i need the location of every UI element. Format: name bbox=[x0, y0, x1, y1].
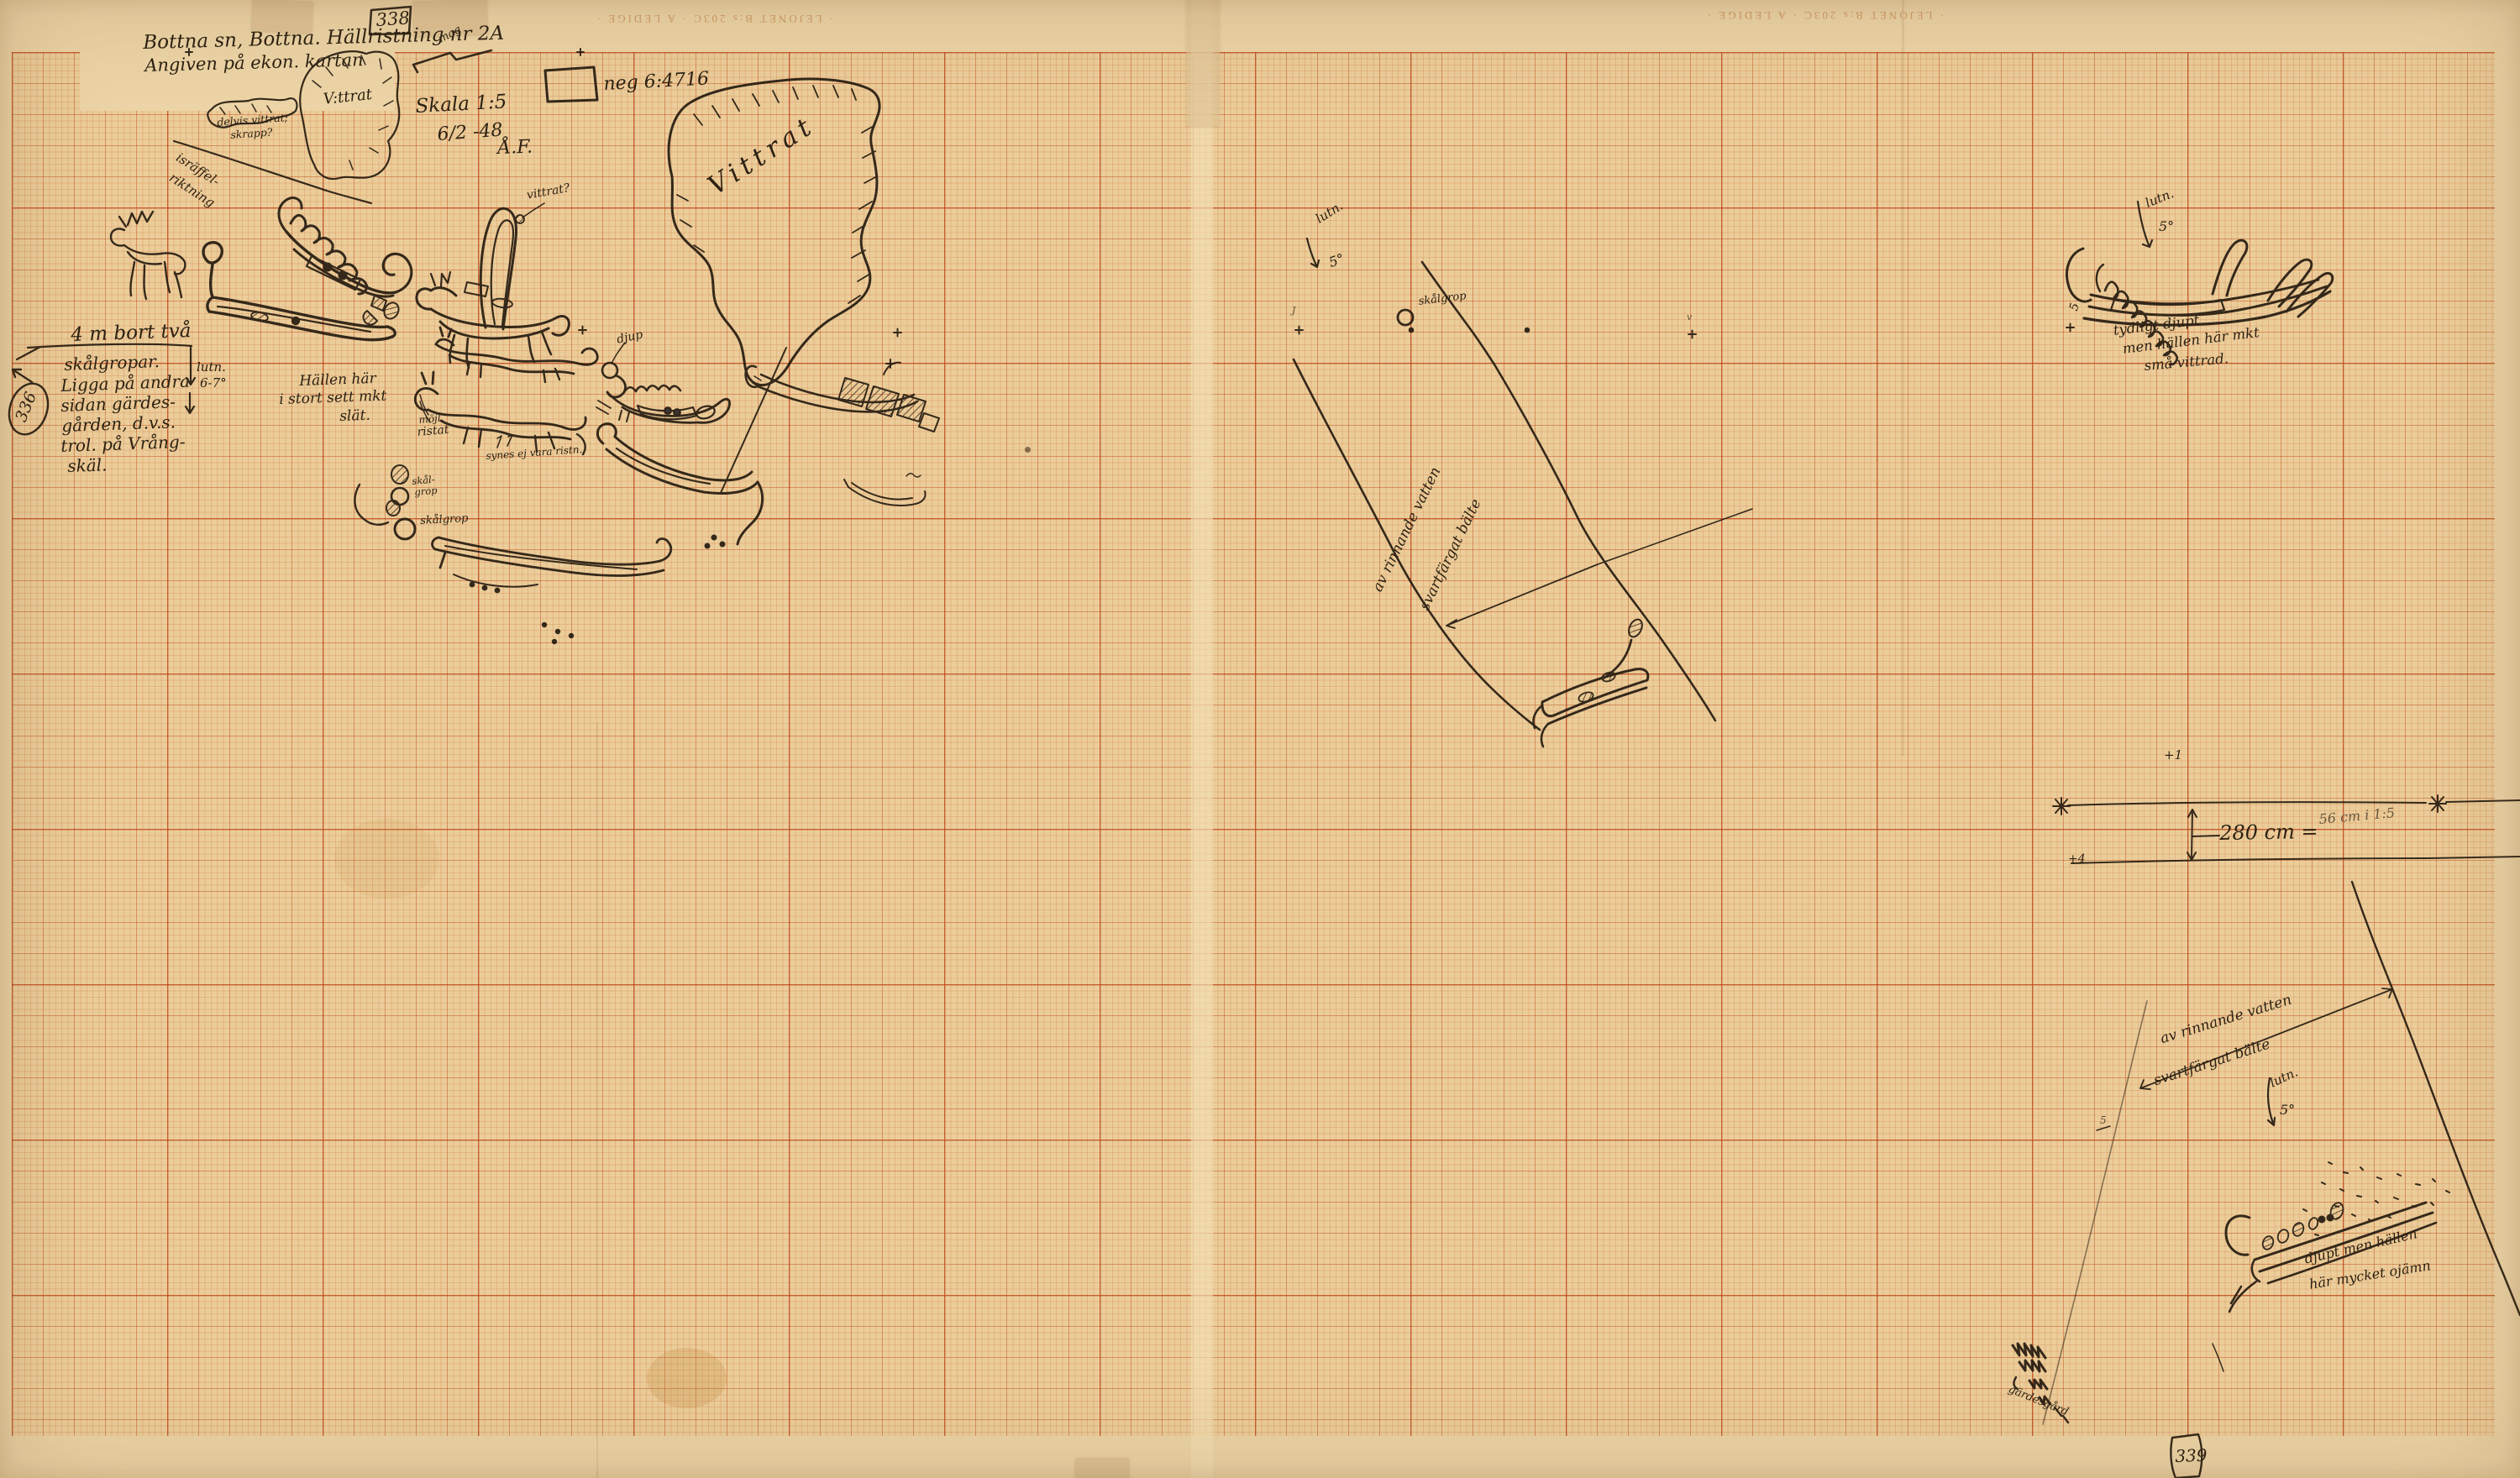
scale-note: Skala 1:5 bbox=[415, 92, 507, 117]
measurement-plus-four: +4 bbox=[2068, 853, 2086, 865]
note-smooth-2: i stort sett mkt bbox=[279, 390, 387, 407]
ship-figure-cup bbox=[596, 343, 730, 422]
left-note-slope-value: 6-7° bbox=[200, 377, 227, 390]
elk-figure-loop bbox=[417, 203, 569, 368]
arc-figure bbox=[844, 474, 926, 506]
right-bottom-band bbox=[2043, 882, 2520, 1424]
north-arrow bbox=[413, 50, 491, 72]
star-mark-left bbox=[2053, 798, 2070, 815]
star-mark-right bbox=[2429, 795, 2446, 812]
left-note-line: sidan gärdes- bbox=[60, 393, 176, 414]
sheet-number-bottom: 339 bbox=[2175, 1447, 2208, 1465]
ship-figure-mid bbox=[1533, 617, 1647, 747]
cup-marks-group bbox=[354, 465, 415, 539]
mid-panel-band bbox=[1294, 238, 1752, 730]
rt-plus-one: +1 bbox=[2164, 749, 2182, 762]
label-possibly-2: ristat bbox=[417, 424, 449, 438]
negative-rect bbox=[545, 67, 597, 102]
surveyor-initials: Å.F. bbox=[497, 139, 533, 158]
left-note-line: skålgropar. bbox=[64, 353, 160, 373]
ship-figure-lower bbox=[597, 348, 786, 548]
note-smooth-3: slät. bbox=[339, 409, 370, 424]
ship-figure-low bbox=[433, 537, 671, 643]
rb-point-five: 5 bbox=[2100, 1115, 2107, 1125]
weathered-area-large bbox=[669, 79, 879, 385]
mid-mark-right: v bbox=[1687, 312, 1692, 322]
slope-arrow-mid bbox=[1307, 238, 1319, 267]
quadruped-figure-1 bbox=[436, 328, 597, 382]
sword-figure bbox=[746, 359, 939, 432]
date-note: 6/2 -48 bbox=[437, 122, 503, 144]
label-cupmark-large: skålgrop bbox=[420, 513, 469, 527]
mid-mark-left: J bbox=[1292, 306, 1295, 315]
rt-slope-value: 5° bbox=[2159, 220, 2174, 233]
left-note-line: skäl. bbox=[67, 456, 108, 474]
survey-dot bbox=[1525, 328, 1529, 332]
ink-drawing-layer bbox=[0, 0, 2520, 1478]
left-note-line: Ligga på andra bbox=[60, 373, 190, 394]
note-smooth-1: Hällen här bbox=[299, 372, 376, 389]
survey-dot bbox=[1410, 328, 1413, 332]
label-cupmark-small-2: grop bbox=[414, 486, 438, 498]
ship-figure-antlered bbox=[279, 198, 412, 325]
left-note-line: gården, d.v.s. bbox=[61, 413, 176, 434]
graph-paper-field-drawing: · LEJONET B:s 203C · A LEDIGE · · LEJONE… bbox=[0, 0, 2520, 1478]
left-note-line: trol. på Vrång- bbox=[60, 433, 186, 454]
rb-slope-value: 5° bbox=[2280, 1103, 2295, 1117]
weathering-dots bbox=[2303, 1162, 2449, 1235]
left-note-heading: 4 m bort två bbox=[71, 322, 192, 345]
elk-figure-small bbox=[111, 212, 185, 299]
cup-mark-mid bbox=[1398, 310, 1413, 325]
measurement-value: 280 cm = bbox=[2219, 821, 2318, 843]
left-note-slope-label: lutn. bbox=[197, 361, 226, 374]
